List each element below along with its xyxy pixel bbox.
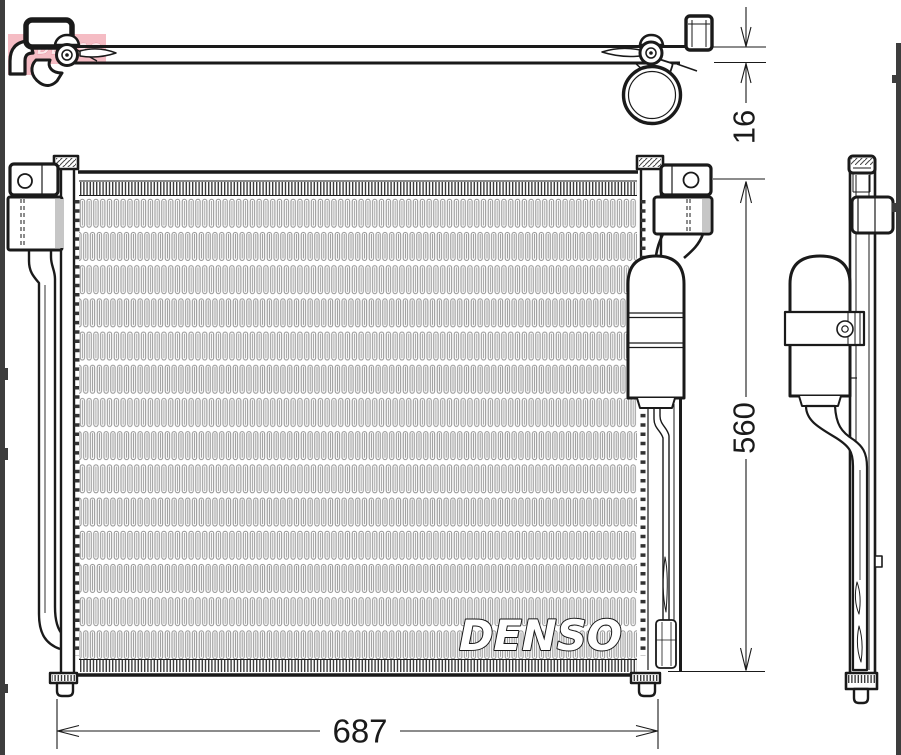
adjacent-image-edge-right [892, 43, 901, 755]
product-technical-drawing: DENSO [0, 0, 901, 755]
dimension-width: 687 [57, 699, 658, 750]
clamp-screw [837, 321, 853, 337]
dimension-height-label: 560 [727, 402, 762, 454]
mounting-foot-left [50, 673, 77, 696]
bracket-hole-left [18, 174, 32, 188]
receiver-drier-front [628, 234, 703, 408]
right-pipe-assembly [648, 399, 681, 672]
mounting-foot-side [846, 673, 877, 703]
bracket-hole-right [684, 173, 699, 188]
dimension-depth-label: 16 [727, 110, 762, 144]
left-pipe [29, 250, 63, 649]
right-mounting-bracket [654, 165, 712, 234]
left-mounting-bracket [8, 164, 64, 250]
receiver-drier-top-view [624, 67, 681, 124]
side-pipes [806, 406, 867, 670]
dimension-width-label: 687 [332, 713, 387, 750]
adjacent-image-edge-left [0, 0, 8, 755]
condenser-core [78, 172, 638, 675]
top-view-left-fitting [10, 20, 116, 85]
top-view [10, 16, 712, 124]
front-view: DENSO [8, 156, 712, 696]
dimension-height: 560 [668, 179, 765, 672]
dimension-depth: 16 [712, 7, 766, 144]
mounting-foot-right [631, 673, 660, 696]
side-view [785, 156, 893, 703]
brand-logo: DENSO [459, 611, 622, 660]
